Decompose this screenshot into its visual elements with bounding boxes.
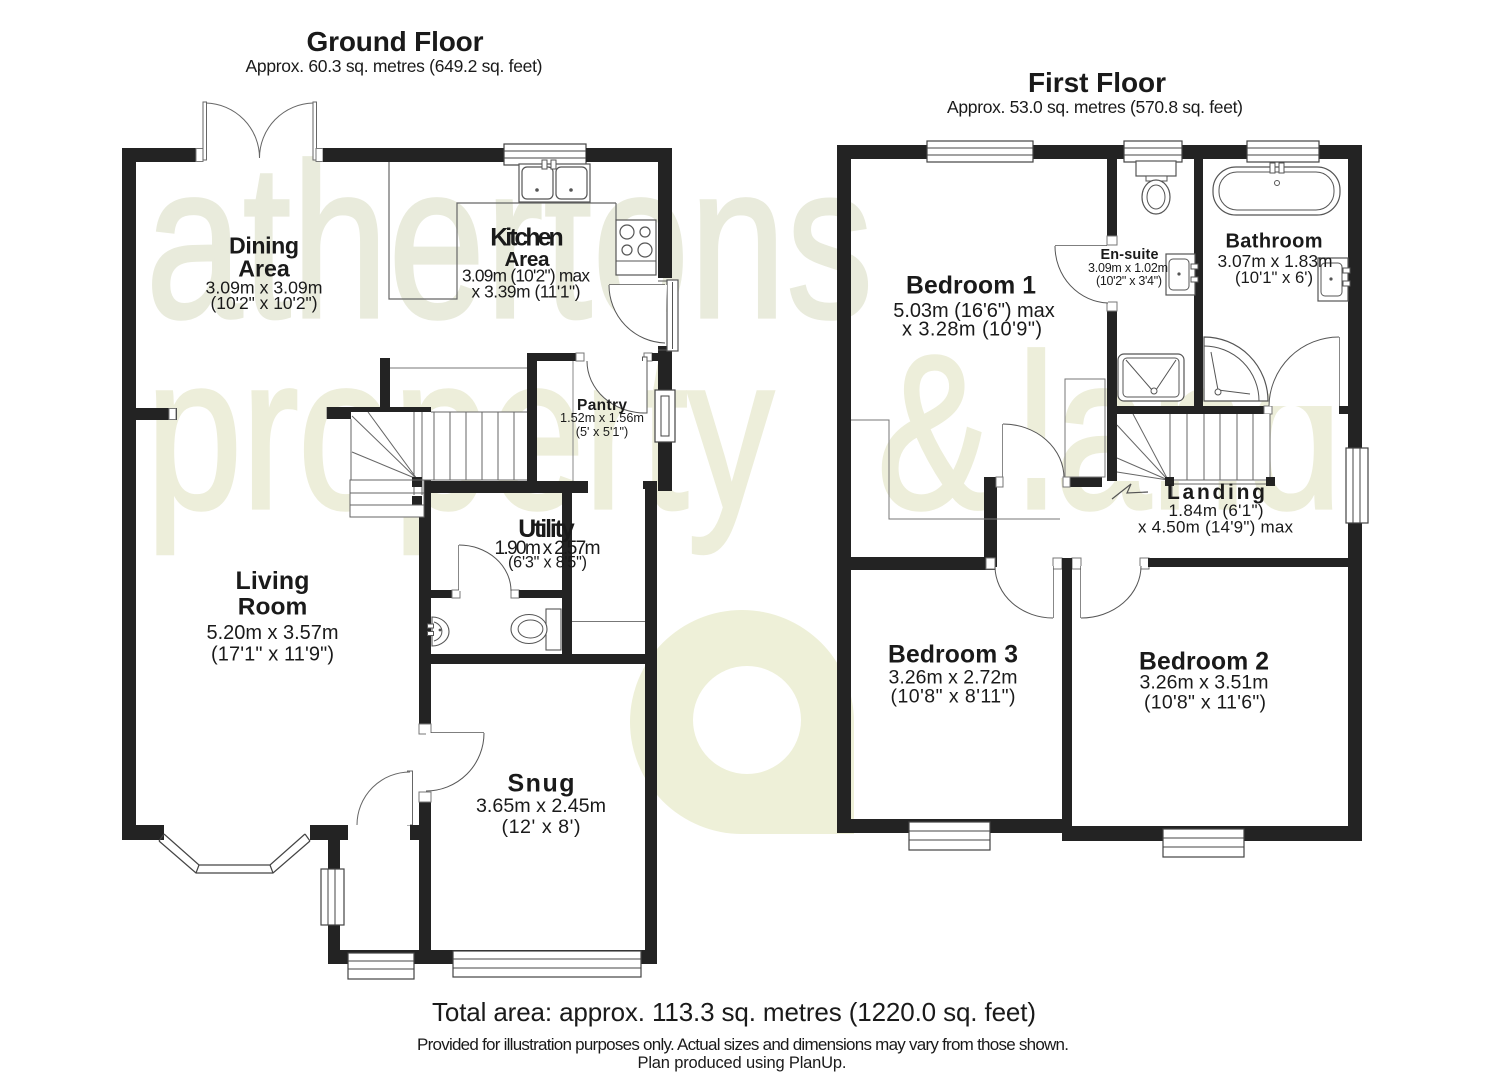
- svg-text:Ground Floor: Ground Floor: [307, 26, 484, 57]
- svg-text:(10'2" x 10'2"): (10'2" x 10'2"): [211, 293, 318, 313]
- svg-text:(10'8" x 8'11"): (10'8" x 8'11"): [891, 685, 1016, 707]
- svg-text:(6'3" x 8'5"): (6'3" x 8'5"): [508, 554, 587, 572]
- svg-text:(5' x 5'1"): (5' x 5'1"): [576, 425, 629, 439]
- svg-text:Bedroom 3: Bedroom 3: [888, 642, 1018, 669]
- svg-text:Approx. 53.0 sq. metres (570.8: Approx. 53.0 sq. metres (570.8 sq. feet): [947, 97, 1243, 117]
- svg-text:x 3.28m (10'9"): x 3.28m (10'9"): [902, 319, 1042, 341]
- svg-text:1.52m x 1.56m: 1.52m x 1.56m: [560, 411, 644, 425]
- svg-text:5.20m x 3.57m: 5.20m x 3.57m: [207, 622, 339, 644]
- svg-text:Provided for illustration purp: Provided for illustration purposes only.…: [417, 1035, 1069, 1054]
- svg-text:First Floor: First Floor: [1028, 67, 1166, 98]
- svg-text:Bedroom 1: Bedroom 1: [906, 272, 1036, 299]
- svg-text:3.26m x 3.51m: 3.26m x 3.51m: [1140, 672, 1269, 694]
- svg-text:x 3.39m (11'1"): x 3.39m (11'1"): [472, 282, 581, 302]
- svg-text:Snug: Snug: [508, 770, 575, 798]
- svg-text:x 4.50m (14'9") max: x 4.50m (14'9") max: [1138, 518, 1294, 537]
- svg-text:(10'8" x 11'6"): (10'8" x 11'6"): [1144, 692, 1266, 714]
- svg-text:(17'1" x 11'9"): (17'1" x 11'9"): [211, 644, 334, 666]
- svg-text:(10'2" x 3'4"): (10'2" x 3'4"): [1096, 274, 1162, 288]
- svg-text:Living: Living: [236, 567, 310, 595]
- svg-text:(10'1" x 6'): (10'1" x 6'): [1235, 268, 1313, 287]
- svg-text:Room: Room: [238, 594, 308, 621]
- svg-text:Bathroom: Bathroom: [1226, 231, 1323, 253]
- svg-text:Total area: approx. 113.3 sq.: Total area: approx. 113.3 sq. metres (12…: [432, 997, 1036, 1027]
- svg-text:3.65m x 2.45m: 3.65m x 2.45m: [476, 795, 606, 817]
- svg-text:3.09m x 1.02m: 3.09m x 1.02m: [1088, 261, 1168, 275]
- svg-text:Plan produced using PlanUp.: Plan produced using PlanUp.: [638, 1054, 847, 1072]
- svg-text:&: &: [877, 309, 992, 555]
- svg-text:(12' x 8'): (12' x 8'): [502, 816, 581, 838]
- svg-text:Approx. 60.3 sq. metres (649.2: Approx. 60.3 sq. metres (649.2 sq. feet): [246, 56, 543, 76]
